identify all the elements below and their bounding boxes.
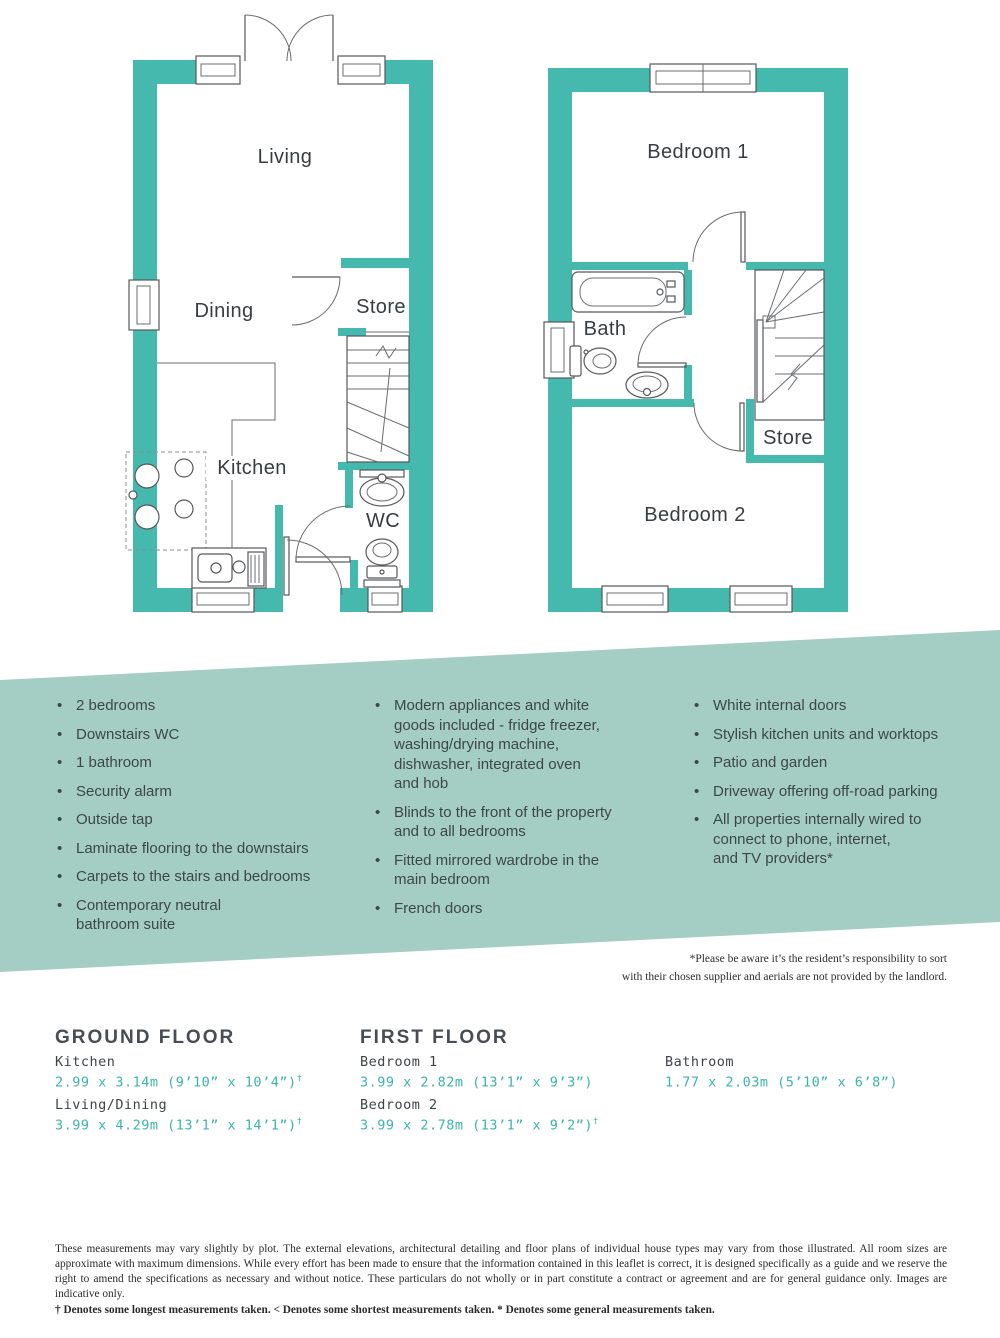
room-label-store-first: Store xyxy=(763,427,813,449)
window xyxy=(129,280,159,330)
ground-floor-plan: Living Dining Store Kitchen WC xyxy=(126,15,433,612)
aerials-footnote-line: with their chosen supplier and aerials a… xyxy=(517,968,947,986)
room-label-bedroom2: Bedroom 2 xyxy=(644,504,745,526)
features-column-2: Modern appliances and white goods includ… xyxy=(375,696,635,927)
features-column-3: White internal doors Stylish kitchen uni… xyxy=(694,696,974,878)
dim-room-size: 3.99 x 2.82m (13’1” x 9’3”) xyxy=(360,1074,593,1091)
feature-item: 2 bedrooms xyxy=(57,696,337,716)
window xyxy=(368,586,402,612)
dim-size-text: 3.99 x 4.29m (13’1” x 14’1”) xyxy=(55,1118,297,1134)
feature-item: 1 bathroom xyxy=(57,753,337,773)
dimension-kitchen: Kitchen 2.99 x 3.14m (9’10” x 10’4”)† xyxy=(55,1054,303,1091)
stairs xyxy=(347,332,409,462)
room-label-dining: Dining xyxy=(194,300,253,322)
feature-item: White internal doors xyxy=(694,696,974,716)
feature-item: Security alarm xyxy=(57,782,337,802)
feature-item: Fitted mirrored wardrobe in the main bed… xyxy=(375,851,635,890)
disclaimer: These measurements may vary slightly by … xyxy=(55,1242,947,1318)
store-door xyxy=(292,277,340,325)
window xyxy=(602,586,668,612)
window xyxy=(650,64,756,92)
window xyxy=(730,586,792,612)
disclaimer-text: These measurements may vary slightly by … xyxy=(55,1242,947,1303)
feature-item: Laminate flooring to the downstairs xyxy=(57,839,337,859)
feature-item: All properties internally wired to conne… xyxy=(694,810,974,869)
basin-icon xyxy=(626,372,668,398)
dimension-bathroom: Bathroom 1.77 x 2.03m (5’10” x 6’8”) xyxy=(665,1054,898,1091)
stairs xyxy=(755,270,824,420)
kitchen-counter xyxy=(157,363,275,548)
dim-size-note: † xyxy=(593,1117,599,1127)
aerials-footnote-line: *Please be aware it’s the resident’s res… xyxy=(517,950,947,968)
dim-room-size: 3.99 x 4.29m (13’1” x 14’1”)† xyxy=(55,1117,303,1134)
room-label-wc: WC xyxy=(366,510,400,532)
floorplans-svg: Living Dining Store Kitchen WC xyxy=(0,0,1000,650)
dim-room-name: Living/Dining xyxy=(55,1097,303,1113)
dim-room-name: Bedroom 1 xyxy=(360,1054,593,1070)
feature-item: Carpets to the stairs and bedrooms xyxy=(57,867,337,887)
dim-room-size: 1.77 x 2.03m (5’10” x 6’8”) xyxy=(665,1074,898,1091)
features-band: 2 bedrooms Downstairs WC 1 bathroom Secu… xyxy=(0,620,1000,982)
first-floor-heading: FIRST FLOOR xyxy=(360,1027,509,1049)
window xyxy=(338,56,385,84)
room-label-bedroom1: Bedroom 1 xyxy=(647,141,748,163)
ground-floor-heading: GROUND FLOOR xyxy=(55,1027,235,1049)
entrance-door xyxy=(284,537,342,595)
sink-icon xyxy=(192,548,266,588)
dim-size-note: † xyxy=(297,1074,303,1084)
feature-item: Modern appliances and white goods includ… xyxy=(375,696,635,794)
bedroom2-door xyxy=(694,403,744,451)
room-label-bath: Bath xyxy=(584,318,627,340)
feature-item: Blinds to the front of the property and … xyxy=(375,803,635,842)
dim-room-size: 3.99 x 2.78m (13’1” x 9’2”)† xyxy=(360,1117,599,1134)
feature-item: Contemporary neutral bathroom suite xyxy=(57,896,337,935)
dim-size-text: 1.77 x 2.03m (5’10” x 6’8”) xyxy=(665,1075,898,1091)
dim-size-note: † xyxy=(297,1117,303,1127)
dim-room-size: 2.99 x 3.14m (9’10” x 10’4”)† xyxy=(55,1074,303,1091)
aerials-footnote: *Please be aware it’s the resident’s res… xyxy=(517,950,947,987)
first-floor-plan: Bedroom 1 Bath Store Bedroom 2 xyxy=(544,64,848,612)
bath-door xyxy=(638,317,686,367)
feature-item: French doors xyxy=(375,899,635,919)
dim-size-text: 3.99 x 2.82m (13’1” x 9’3”) xyxy=(360,1075,593,1091)
window xyxy=(192,586,254,612)
dim-room-name: Bedroom 2 xyxy=(360,1097,599,1113)
feature-item: Stylish kitchen units and worktops xyxy=(694,725,974,745)
dimension-bedroom1: Bedroom 1 3.99 x 2.82m (13’1” x 9’3”) xyxy=(360,1054,593,1091)
toilet-icon xyxy=(570,346,616,376)
bathtub-icon xyxy=(572,272,684,312)
french-doors xyxy=(245,15,333,61)
room-label-kitchen: Kitchen xyxy=(217,457,287,479)
dim-size-text: 3.99 x 2.78m (13’1” x 9’2”) xyxy=(360,1118,593,1134)
feature-item: Driveway offering off-road parking xyxy=(694,782,974,802)
basin-icon xyxy=(360,470,404,506)
feature-item: Downstairs WC xyxy=(57,725,337,745)
room-label-store-ground: Store xyxy=(356,296,406,318)
dimension-bedroom2: Bedroom 2 3.99 x 2.78m (13’1” x 9’2”)† xyxy=(360,1097,599,1134)
dimension-living-dining: Living/Dining 3.99 x 4.29m (13’1” x 14’1… xyxy=(55,1097,303,1134)
dim-room-name: Kitchen xyxy=(55,1054,303,1070)
feature-item: Outside tap xyxy=(57,810,337,830)
bedroom1-door xyxy=(693,212,745,262)
dim-room-name: Bathroom xyxy=(665,1054,898,1070)
features-column-1: 2 bedrooms Downstairs WC 1 bathroom Secu… xyxy=(57,696,337,944)
feature-item: Patio and garden xyxy=(694,753,974,773)
toilet-icon xyxy=(364,539,400,587)
disclaimer-denotes: † Denotes some longest measurements take… xyxy=(55,1303,947,1318)
window xyxy=(196,56,240,84)
room-label-living: Living xyxy=(258,146,313,168)
dim-size-text: 2.99 x 3.14m (9’10” x 10’4”) xyxy=(55,1075,297,1091)
leaflet-page: Living Dining Store Kitchen WC xyxy=(0,0,1000,1338)
